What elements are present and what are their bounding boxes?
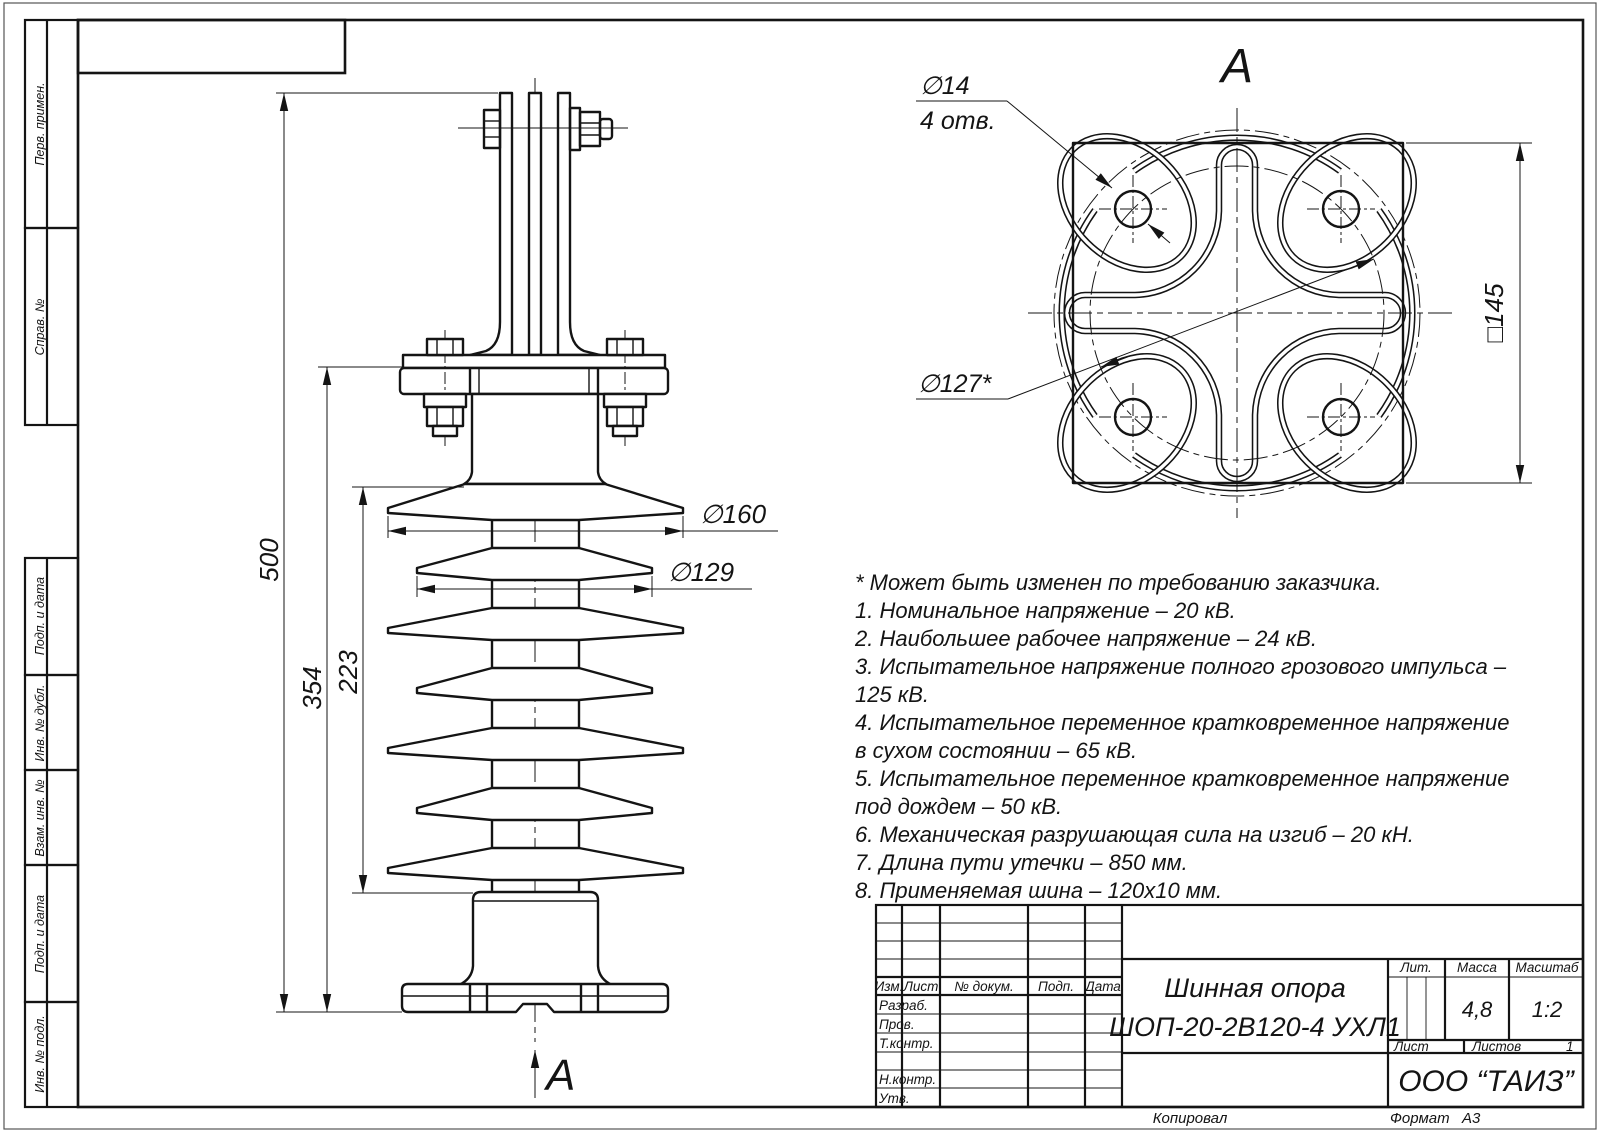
masshtab-label: Масштаб [1515, 960, 1578, 975]
company-name: ООО “ТАИЗ” [1398, 1065, 1576, 1098]
dim-holes-count: 4 отв. [920, 107, 996, 135]
col-podp: Подп. [1038, 979, 1074, 994]
row-nkontr: Н.контр. [879, 1072, 936, 1087]
row-prov: Пров. [879, 1017, 915, 1032]
note-line-9: 6. Механическая разрушающая сила на изги… [855, 822, 1414, 847]
note-line-7: 5. Испытательное переменное кратковремен… [855, 766, 1510, 791]
strip-box-1: Перв. примен. [25, 20, 78, 228]
row-tkontr: Т.контр. [879, 1036, 933, 1051]
dim-d160: ∅160 [700, 499, 767, 529]
dim-d127: ∅127* [918, 370, 992, 398]
masshtab-value: 1:2 [1532, 997, 1563, 1022]
note-line-6: в сухом состоянии – 65 кВ. [855, 738, 1137, 763]
strip-label-sprav-n: Справ. № [33, 298, 47, 355]
view-a-title: А [1218, 40, 1253, 93]
note-line-3: 3. Испытательное напряжение полного гроз… [855, 654, 1507, 679]
format-value: А3 [1461, 1110, 1481, 1127]
note-line-2: 2. Наибольшее рабочее напряжение – 24 кВ… [854, 626, 1317, 651]
format-label: Формат [1390, 1110, 1450, 1127]
view-arrow-label: А [543, 1051, 575, 1100]
note-line-11: 8. Применяемая шина – 120х10 мм. [855, 878, 1222, 903]
dim-d129: ∅129 [668, 557, 734, 587]
drawing-sheet: Перв. примен. Справ. № Подп. и дата Инв.… [0, 0, 1600, 1133]
note-line-5: 4. Испытательное переменное кратковремен… [855, 710, 1510, 735]
strip-label-podp-data-2: Подп. и дата [33, 895, 47, 973]
strip-box-3: Подп. и дата [25, 558, 78, 675]
copied-label: Копировал [1153, 1110, 1228, 1127]
note-line-10: 7. Длина пути утечки – 850 мм. [855, 850, 1188, 875]
lit-label: Лит. [1399, 960, 1432, 975]
sheet-footer: Копировал Формат А3 [1153, 1110, 1481, 1127]
doc-title-line2: ШОП-20-2В120-4 УХЛ1 [1109, 1012, 1401, 1042]
view-direction-arrow: А [535, 1050, 575, 1100]
strip-box-6: Подп. и дата [25, 865, 78, 1002]
strip-label-podp-data-1: Подп. и дата [33, 577, 47, 655]
dim-223: 223 [333, 650, 363, 695]
dim-square-145: □145 [1479, 283, 1509, 343]
doc-title-line1: Шинная опора [1164, 973, 1345, 1003]
col-data: Дата [1083, 979, 1121, 994]
strip-label-vzam-inv: Взам. инв. № [33, 779, 47, 857]
front-view: 500 354 223 ∅160 ∅129 А [254, 78, 778, 1100]
row-razrab: Разраб. [879, 998, 928, 1013]
view-a-centerlines [1028, 108, 1452, 518]
massa-value: 4,8 [1462, 997, 1493, 1022]
view-a: А [916, 40, 1532, 518]
strip-label-perv-primen: Перв. примен. [33, 82, 47, 165]
dim-500: 500 [254, 538, 284, 582]
drawing-canvas: Перв. примен. Справ. № Подп. и дата Инв.… [0, 0, 1600, 1133]
row-utv: Утв. [878, 1091, 910, 1106]
massa-label: Масса [1457, 960, 1497, 975]
title-block: Изм. Лист № докум. Подп. Дата Разраб. Пр… [875, 905, 1583, 1107]
note-line-4: 125 кВ. [855, 682, 929, 707]
dim-354: 354 [297, 666, 327, 709]
col-izm: Изм. [875, 979, 904, 994]
listov-value: 1 [1566, 1039, 1574, 1054]
listov-label: Листов [1471, 1039, 1521, 1054]
col-list: Лист [903, 979, 939, 994]
strip-label-inv-podl: Инв. № подл. [33, 1015, 47, 1093]
note-line-0: * Может быть изменен по требованию заказ… [855, 570, 1382, 595]
notes-block: * Может быть изменен по требованию заказ… [854, 570, 1510, 903]
strip-box-2: Справ. № [25, 228, 78, 425]
col-n-dokum: № докум. [954, 979, 1013, 994]
note-line-1: 1. Номинальное напряжение – 20 кВ. [855, 598, 1236, 623]
strip-box-5: Взам. инв. № [25, 770, 78, 865]
strip-box-7: Инв. № подл. [25, 1002, 78, 1107]
note-line-8: под дождем – 50 кВ. [855, 794, 1062, 819]
strip-label-inv-dubl: Инв. № дубл. [33, 685, 47, 762]
square-dimension: □145 [1406, 143, 1532, 483]
strip-box-4: Инв. № дубл. [25, 675, 78, 770]
dim-d14: ∅14 [920, 72, 970, 100]
left-strip: Перв. примен. Справ. № Подп. и дата Инв.… [25, 20, 78, 1107]
